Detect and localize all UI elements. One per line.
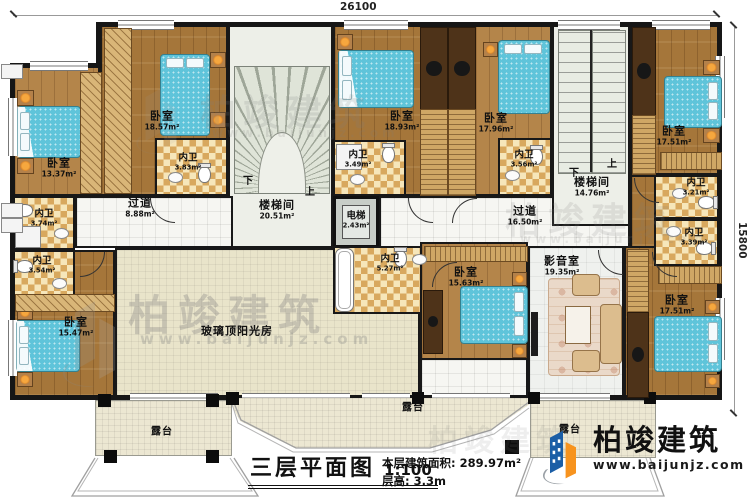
room-label-bedroom-bm: 卧室15.63m²	[449, 266, 484, 287]
room-label-bedroom-tr: 卧室17.51m²	[657, 125, 692, 146]
armchair	[572, 350, 600, 372]
coffee-table	[565, 306, 591, 344]
nightstand	[705, 300, 720, 314]
room-label-elevator: 电梯2.43m²	[343, 212, 370, 231]
wardrobe	[424, 246, 528, 262]
column	[528, 392, 540, 404]
ac-unit	[1, 64, 23, 79]
column	[226, 392, 239, 405]
room-label-bath-349: 内卫3.49m²	[345, 151, 372, 170]
window	[30, 61, 88, 71]
desk	[627, 312, 649, 398]
column	[104, 450, 117, 463]
pillow	[19, 326, 29, 344]
nightstand	[17, 90, 34, 106]
room-label-bath-339: 内卫3.39m²	[681, 229, 708, 248]
toilet	[382, 146, 395, 163]
room-label-bedroom-m2: 卧室17.96m²	[479, 112, 514, 133]
desk	[632, 27, 656, 117]
window	[652, 20, 710, 30]
plan-floor-height-text: 层高: 3.3m	[382, 473, 521, 491]
desk	[420, 27, 448, 111]
desk	[448, 27, 476, 111]
room-label-bath-527: 内卫5.27m²	[377, 255, 404, 274]
nightstand	[17, 158, 34, 174]
stair-up-label: 上	[607, 155, 617, 170]
armchair	[572, 274, 600, 296]
pillow	[514, 292, 524, 312]
room-label-bedroom-tl2: 卧室18.57m²	[145, 110, 180, 131]
tv	[531, 312, 538, 356]
desk	[423, 290, 443, 354]
room-label-terrace-mid: 露台	[402, 402, 424, 414]
wall	[96, 22, 101, 68]
wardrobe	[15, 294, 115, 312]
pillow	[708, 82, 718, 100]
pillow	[186, 58, 204, 68]
dimension-line-top	[13, 15, 718, 16]
wardrobe	[104, 28, 132, 194]
room-label-media: 影音室19.35m²	[544, 255, 580, 276]
wall	[96, 22, 722, 27]
toilet	[698, 196, 715, 209]
sofa	[600, 304, 622, 364]
sink	[168, 172, 183, 183]
stairs-flight	[592, 30, 626, 174]
wardrobe	[448, 109, 476, 196]
room-label-terrace-left: 露台	[151, 426, 173, 438]
room-label-bath-374: 内卫3.74m²	[31, 210, 58, 229]
sink	[505, 170, 520, 181]
dimension-tick	[10, 10, 18, 18]
wardrobe	[80, 72, 102, 194]
nightstand	[512, 272, 527, 286]
stair-down-label: 下	[569, 164, 579, 179]
company-logo-icon	[537, 424, 589, 486]
nightstand	[703, 60, 720, 75]
floorplan-canvas: 26100 15800	[0, 0, 750, 500]
room-label-stairwell-left: 楼梯间20.51m²	[259, 199, 295, 220]
pillow	[504, 44, 522, 54]
sink	[52, 278, 67, 289]
nightstand	[483, 42, 498, 57]
nightstand	[210, 52, 226, 68]
column	[505, 440, 519, 454]
pillow	[20, 133, 30, 151]
dimension-line-right	[734, 25, 735, 415]
stair-down-label: 下	[243, 172, 253, 187]
wardrobe	[627, 249, 649, 313]
plan-title: 三层平面图	[250, 456, 375, 481]
dimension-tick	[713, 10, 721, 18]
room-label-bath-321: 内卫3.21m²	[683, 179, 710, 198]
sink	[666, 226, 681, 237]
column	[98, 394, 111, 407]
sink	[412, 254, 427, 265]
window	[558, 20, 620, 30]
ac-unit	[1, 203, 23, 218]
plan-area-text: 本层建筑面积: 289.97m²	[382, 455, 521, 473]
company-website: www.baijunjz.com	[593, 457, 745, 472]
room-label-bedroom-tl: 卧室13.37m²	[42, 157, 77, 178]
bathtub	[335, 248, 354, 312]
pillow	[342, 80, 352, 100]
nightstand	[210, 112, 226, 128]
room-label-bedroom-m1: 卧室18.93m²	[385, 110, 420, 131]
stairs-flight	[558, 30, 592, 174]
nightstand	[512, 344, 527, 358]
room-label-bath-356: 内卫3.56m²	[511, 151, 538, 170]
pillow	[708, 322, 718, 341]
nightstand	[705, 374, 720, 388]
company-logo: 柏竣建筑 www.baijunjz.com	[537, 424, 745, 486]
room-label-stairwell-right: 楼梯间14.76m²	[574, 176, 610, 197]
room-label-corridor-left: 过道8.88m²	[125, 197, 155, 218]
wardrobe	[660, 152, 722, 170]
room-label-sunroom: 玻璃顶阳光房	[201, 326, 273, 339]
room-label-bath-354: 内卫3.54m²	[29, 257, 56, 276]
plan-info: 本层建筑面积: 289.97m² 层高: 3.3m	[382, 455, 521, 491]
column	[206, 450, 219, 463]
pillow	[19, 347, 29, 365]
column	[206, 394, 219, 407]
window	[344, 20, 408, 30]
nightstand	[337, 34, 353, 50]
wardrobe	[420, 109, 448, 196]
pillow	[166, 58, 184, 68]
room-label-bedroom-br: 卧室17.51m²	[660, 294, 695, 315]
nightstand	[703, 128, 720, 143]
room-label-corridor-right: 过道16.50m²	[508, 205, 543, 226]
room-label-bedroom-bl: 卧室15.47m²	[59, 316, 94, 337]
sink	[350, 174, 365, 185]
room-label-bath-383: 内卫3.83m²	[175, 154, 202, 173]
pillow	[342, 56, 352, 76]
pillow	[20, 112, 30, 130]
wardrobe	[632, 115, 656, 175]
pillow	[708, 102, 718, 120]
nightstand	[17, 372, 33, 387]
company-name: 柏竣建筑	[593, 424, 745, 457]
pillow	[524, 44, 542, 54]
pillow	[708, 344, 718, 363]
stair-up-label: 上	[305, 183, 315, 198]
pillow	[514, 316, 524, 336]
dimension-top-value: 26100	[340, 1, 377, 13]
stairs-divider	[590, 30, 592, 172]
sink	[54, 228, 69, 239]
ac-unit	[1, 218, 23, 233]
dimension-right-value: 15800	[736, 222, 748, 259]
